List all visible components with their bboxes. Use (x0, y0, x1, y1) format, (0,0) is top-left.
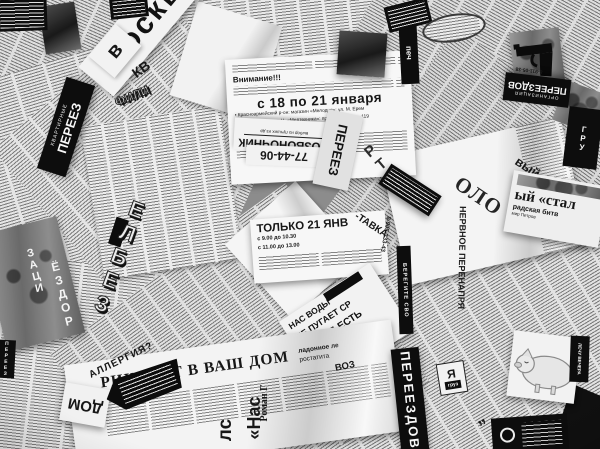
black-ad-chip (0, 0, 48, 32)
dom-text: ДОМ (66, 394, 103, 417)
dark-photo (337, 30, 388, 77)
ring-mark (500, 427, 516, 443)
ya-gruz-ad: Я груз (436, 360, 469, 396)
gru-text: ГРУ (577, 124, 589, 152)
masthead-letter-text: в (102, 38, 129, 63)
pereez-left-text: ПЕРЕЕЗ (2, 341, 10, 377)
ya-text: Я (446, 366, 457, 381)
phone-upside-down: 77-44-06 (246, 145, 323, 168)
dark-bottom-strip (491, 413, 569, 449)
gruz-text: груз (444, 380, 461, 390)
pech-text: печ (404, 46, 414, 60)
strip-stripes (521, 420, 563, 447)
nervnoe-text: НЕРВНОЕ ПЕРЕНАПРЯ (456, 206, 468, 309)
zaci-text: ЗАЦИ (23, 246, 46, 295)
pereez-left-banner: ПЕРЕЕЗ (0, 340, 16, 379)
gruz-chip: ГРУ (562, 106, 600, 170)
beregite-text: БЕРЕГИТЕ СВО (401, 263, 409, 318)
pereezdov-banner-text: ПЕРЕЕЗДОВ (397, 350, 422, 449)
pech-strip: печ (398, 22, 419, 85)
pereez-vertical-text: ПЕРЕЕЗ (325, 123, 351, 177)
dom-scrap: ДОМ (59, 382, 111, 427)
nervnoe-headline: НЕРВНОЕ ПЕРЕНАПРЯ (449, 206, 475, 310)
newspaper-collage-photo: осква в КВ ФИЛИ КВАРТИРНЫЕ ПЕРЕЕЗ ЗАЦИ Ё… (0, 0, 600, 449)
phone-text: 77-44-06 (260, 148, 309, 164)
lechu-chip: ЛЕЧУ ВЕЧЕРА (569, 336, 590, 383)
quote-text: „ (470, 406, 488, 429)
roman-text: Роман Г (259, 384, 270, 421)
roman-rotated: Роман Г (253, 375, 275, 431)
lechu-text: ЛЕЧУ ВЕЧЕРА (576, 343, 582, 375)
